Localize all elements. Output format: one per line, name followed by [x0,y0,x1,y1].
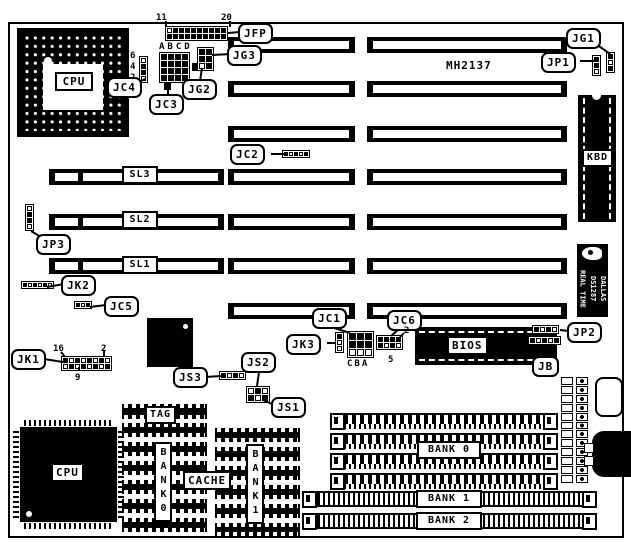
jg1-jumper [606,52,615,73]
cpu-qfp-label: CPU [51,463,84,482]
isa-slot-long-2 [367,81,567,97]
jk2-label: JK2 [61,275,96,296]
jk3-jumper [335,332,344,353]
jk1-pin2-number: 2 [101,345,106,354]
cache-label: CACHE [183,471,231,490]
isa-slot-short-5 [228,214,355,230]
jc6-pin5-number: 5 [388,356,393,365]
simm-slot [330,413,558,430]
din-notch [584,443,594,453]
jc5-jumper [74,301,92,309]
jk1-pin16-number: 16 [53,345,64,354]
cpu-qfp-pin1-dot [26,511,32,517]
isa-slot-long-3 [367,126,567,142]
dallas-rtc-chip: DALLAS DS1287 REAL TIME [577,244,608,317]
jfp-label: JFP [238,23,273,44]
jp2-label: JP2 [567,322,602,343]
jc6-pin2-number: 2 [404,327,409,336]
slot-label-sl1: SL1 [122,256,158,274]
isa-slot-long-4 [367,169,567,185]
dallas-real-time-text: REAL TIME [578,261,588,316]
jc3-jumper-block [159,52,190,83]
js3-jumper [219,371,246,380]
jfp-header [165,26,228,41]
jg2-label: JG2 [182,79,217,100]
motherboard-diagram: SL3 SL2 SL1 MH2137 CPU 11 20 JFP JG3 JG2… [0,0,631,543]
cache-chip [122,423,207,437]
isa-slot-long-5 [367,214,567,230]
tag-label: TAG [145,406,176,424]
jc3-tail-pin [164,83,171,90]
jg3-label: JG3 [227,45,262,66]
isa-slot-short-2 [228,81,355,97]
jg1-label: JG1 [566,28,601,49]
power-connector-right-row [576,377,588,483]
jc2-jumper [282,150,310,158]
jc1-column-letters: CBA [347,360,369,369]
jp1-jumper [592,55,601,76]
jfp-pin20-number: 20 [221,14,232,23]
keyboard-din-connector [592,431,631,477]
jc5-label: JC5 [104,296,139,317]
cpu-qfp-pins-top [24,420,113,426]
jc1-jumper-block [347,331,374,358]
jk1-pin9-number: 9 [75,374,80,383]
cache-bank1-label: BANK1 [246,444,264,524]
js2-label: JS2 [241,352,276,373]
jc4-pin6-number: 6 [130,52,135,61]
isa-slot-long-1 [367,37,567,53]
jc3-column-letters: ABCD [159,43,193,52]
jb-label: JB [532,356,559,377]
cache-chip [215,523,300,536]
jc1-label: JC1 [312,308,347,329]
jc2-label: JC2 [230,144,265,165]
power-connector-left-row [561,377,573,483]
component-outline [595,377,623,417]
slot-label-sl2: SL2 [122,211,158,229]
isa-slot-short-6 [228,258,355,274]
jg3-jg2-jumper-block [197,47,214,71]
cpu-socket-label: CPU [55,72,93,91]
js1-label: JS1 [271,397,306,418]
bank0-label: BANK 0 [417,441,481,459]
jc4-pin4-number: 4 [130,63,135,72]
jk3-label: JK3 [286,334,321,355]
jp3-jumper [25,204,34,231]
bank2-label: BANK 2 [416,512,482,530]
dallas-brand: DALLAS [598,261,608,316]
cache-chip [215,428,300,442]
bank1-label: BANK 1 [416,490,482,508]
jc4-label: JC4 [107,77,142,98]
js3-label: JS3 [173,367,208,388]
js2-js1-jumper-block [246,386,270,403]
jk1-label: JK1 [11,349,46,370]
isa-slot-short-4 [228,169,355,185]
jk2-jumper [21,281,54,289]
simm-slot [330,473,558,490]
jp2-jumper-a [532,325,559,334]
cpu-qfp-pins-bottom [24,523,113,529]
jk1-header [61,356,112,371]
jc6-jumper-block [376,335,403,350]
jp3-label: JP3 [36,234,71,255]
kbd-label: KBD [582,149,613,167]
jp2-jumper-b [528,336,561,345]
jfp-pin11-number: 11 [156,14,167,23]
jc3-label: JC3 [149,94,184,115]
isa-slot-short-3 [228,126,355,142]
dallas-part-number: DS1287 [588,261,598,316]
cpu-qfp-pins-left [13,431,19,518]
din-notch [584,456,594,466]
bios-label: BIOS [447,336,488,355]
isa-slot-long-6 [367,258,567,274]
slot-label-sl3: SL3 [122,166,158,184]
chipset-pin1-dot [183,324,188,329]
cache-bank0-label: BANK0 [154,442,172,522]
jp1-label: JP1 [541,52,576,73]
board-model: MH2137 [446,60,492,71]
cpu-socket-pin1-dot [44,57,52,65]
